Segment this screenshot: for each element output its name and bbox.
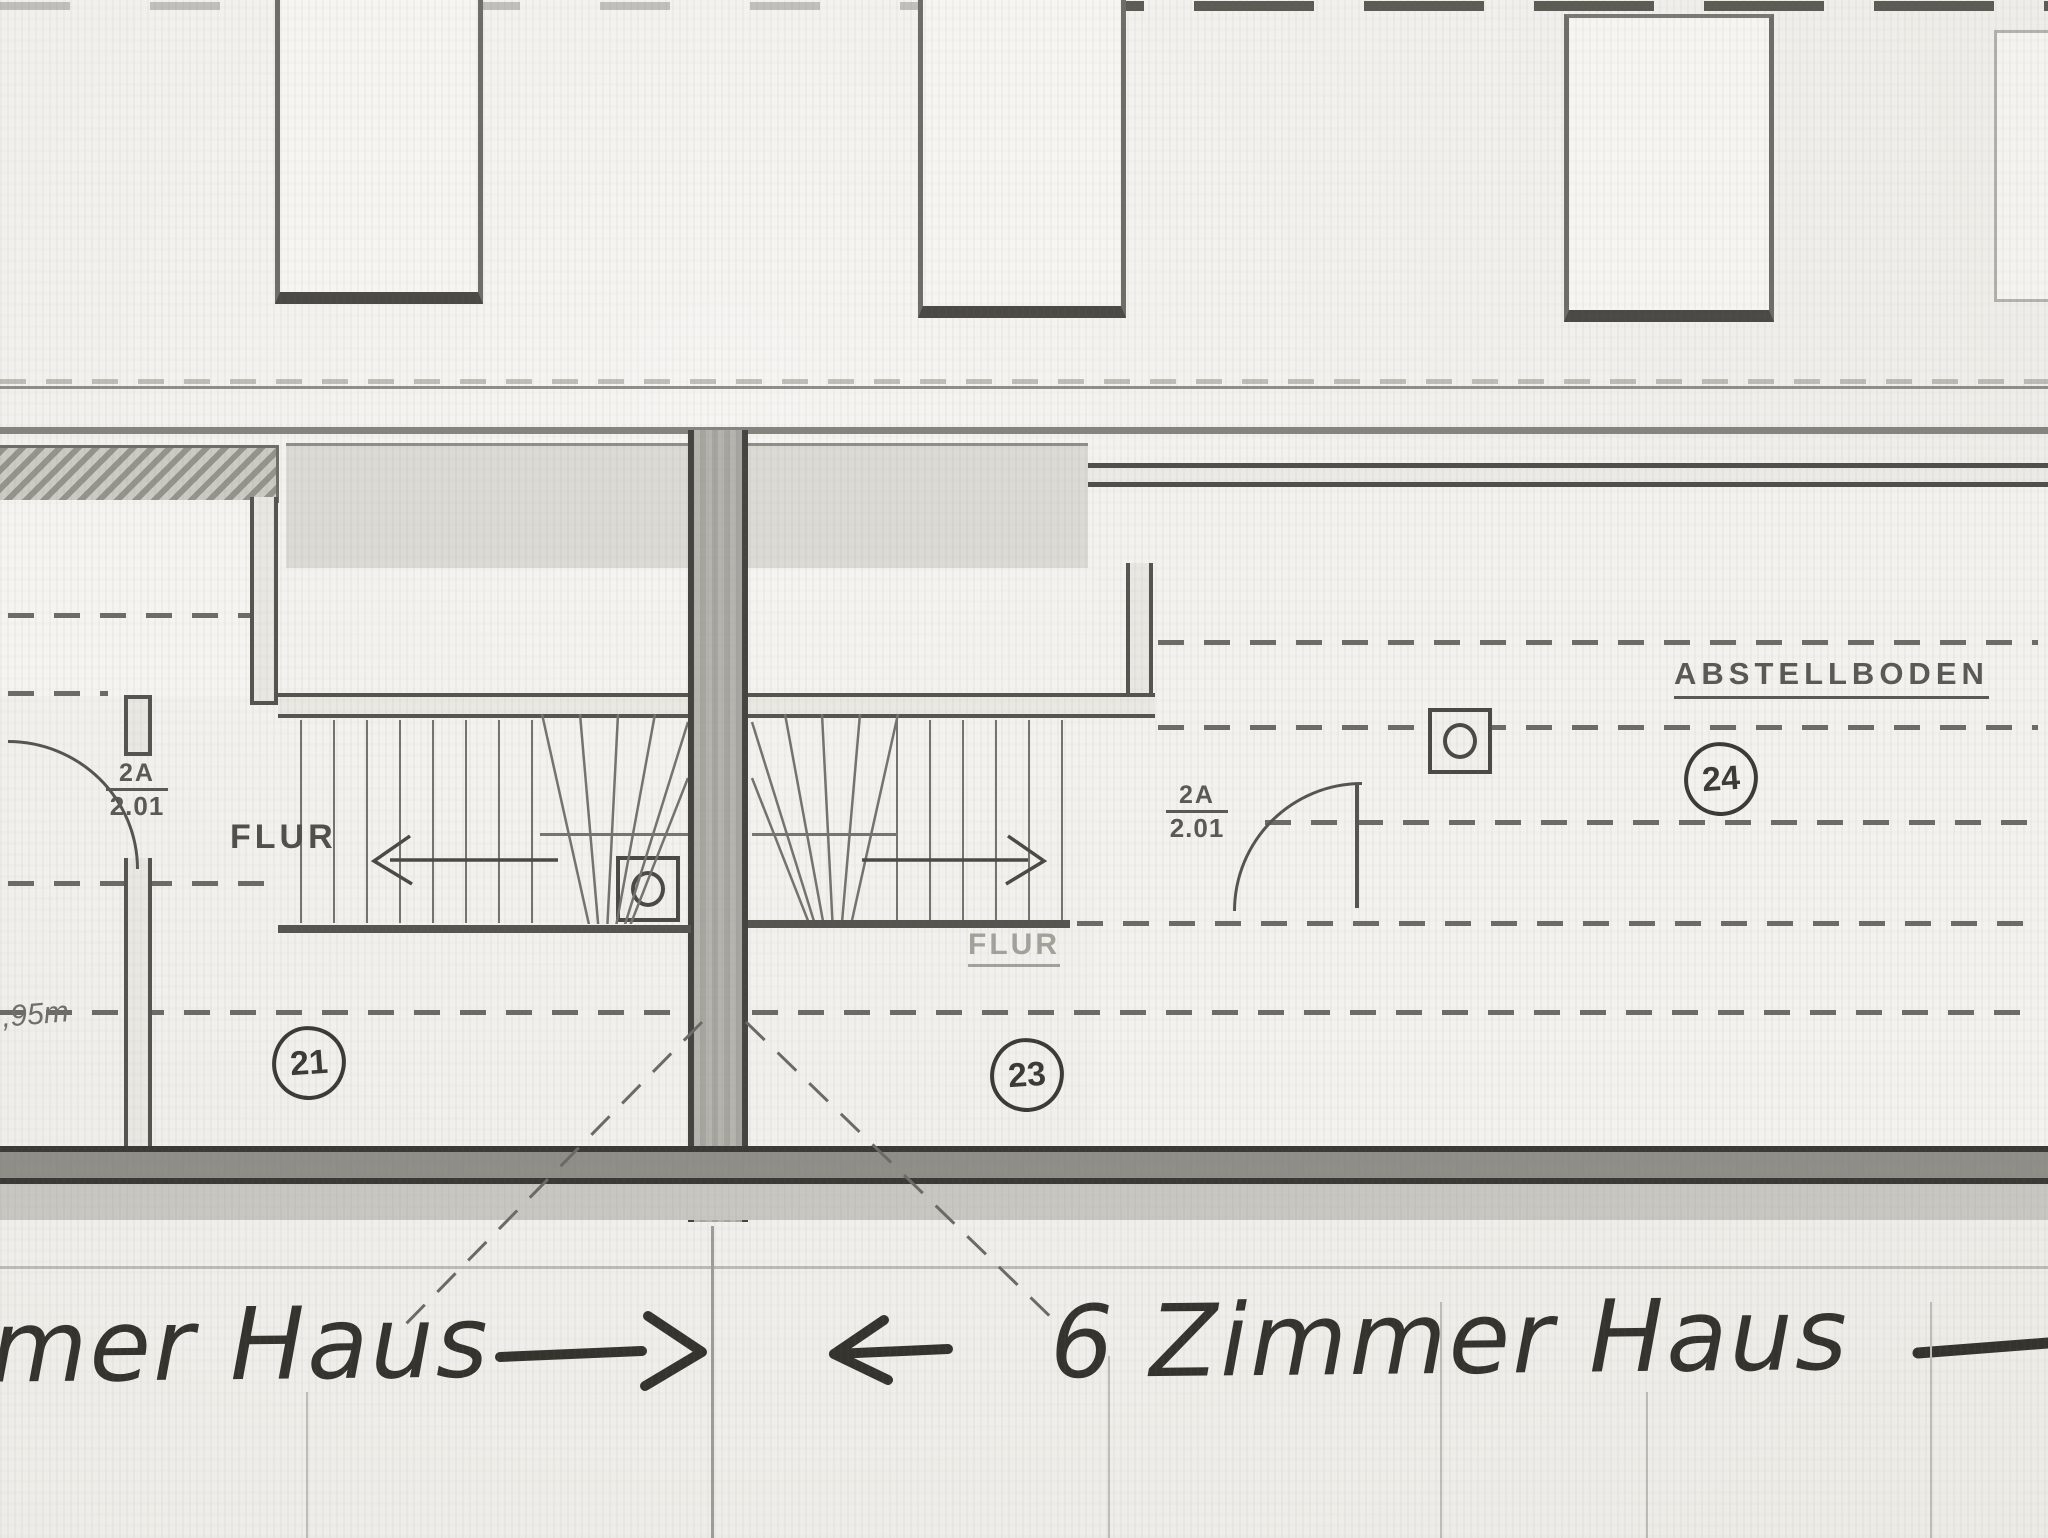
- right-stair-treads: [896, 720, 1068, 920]
- left-unit-room-floor: [0, 500, 250, 696]
- left-hall-label: FLUR: [230, 818, 337, 857]
- dash-row: [1158, 725, 2038, 730]
- room-number-23-text: 23: [1007, 1054, 1047, 1096]
- dash-row: [752, 1010, 2040, 1015]
- right-door-tag: 2A 2.01: [1166, 782, 1228, 843]
- top-edge-dashes-left: [0, 2, 1024, 10]
- bottom-exterior-wall: [0, 1146, 2048, 1184]
- trailing-dash: [1918, 1343, 2048, 1353]
- dash-row: [1158, 640, 2038, 645]
- right-unit-top-wall: [1088, 463, 2048, 487]
- guide-line: [1108, 1356, 1110, 1538]
- left-unit-front-wall: [0, 445, 279, 503]
- duct-circle-icon: [1443, 723, 1477, 759]
- right-house-caption: 6 Zimmer Haus: [1049, 1276, 1849, 1401]
- room-number-23: 23: [988, 1036, 1067, 1115]
- right-stair-winder-fan: [752, 714, 898, 992]
- duct-box-right: [1428, 708, 1492, 774]
- guide-line: [1440, 1302, 1442, 1538]
- eaves-line-lower: [0, 427, 2048, 434]
- chimney-shaft-2: [918, 0, 1126, 318]
- room-number-21-text: 21: [289, 1042, 329, 1084]
- dormer-roof-wash: [286, 443, 1088, 568]
- chimney-shaft-3: [1564, 14, 1774, 322]
- arrow-right-icon: [500, 1316, 702, 1386]
- attic-storage-label: ABSTELLBODEN: [1674, 656, 1989, 699]
- guide-line: [711, 1226, 714, 1538]
- duct-box-left: [616, 856, 680, 922]
- guide-line: [306, 1392, 308, 1538]
- dash-row: [0, 1010, 686, 1015]
- dash-row: [1265, 820, 2040, 825]
- right-door-tag-top: 2A: [1166, 782, 1228, 808]
- left-stair-bottom-wall: [278, 925, 691, 933]
- floor-plan-scan: 21 23 24 FLUR FLUR ABSTELLBODEN 2A 2.01 …: [0, 0, 2048, 1538]
- left-house-caption: mer Haus: [0, 1283, 490, 1405]
- eaves-line-upper: [0, 386, 2048, 389]
- ridge-dash-line: [0, 379, 2048, 384]
- right-unit-room-floor: [1092, 487, 2048, 1147]
- left-stair-winder-fan: [542, 714, 688, 992]
- room-number-21: 21: [270, 1024, 349, 1103]
- right-unit-partition-wall: [1126, 563, 1153, 693]
- room-number-24-text: 24: [1701, 758, 1741, 800]
- dash-row: [8, 691, 108, 696]
- facade-guide-line: [0, 1266, 2048, 1269]
- chimney-shaft-4-partial: [1994, 30, 2048, 302]
- guide-line: [1930, 1302, 1932, 1538]
- left-stair-mid-rail: [540, 833, 688, 836]
- guide-line: [1646, 1392, 1648, 1538]
- left-door-jamb: [124, 695, 152, 756]
- left-door-tag-bottom: 2.01: [106, 793, 168, 820]
- arrow-left-icon: [834, 1320, 948, 1380]
- left-door-tag: 2A 2.01: [106, 760, 168, 821]
- left-stair-top-wall: [278, 693, 688, 718]
- right-door-tag-bottom: 2.01: [1166, 815, 1228, 842]
- left-hall-wall: [124, 858, 152, 1148]
- right-stair-mid-rail: [752, 833, 898, 836]
- left-unit-partition-wall: [250, 497, 278, 705]
- right-stair-top-wall: [748, 693, 1155, 718]
- dash-row: [8, 613, 270, 618]
- dash-row: [1077, 921, 2040, 926]
- top-edge-dashes-right: [1024, 1, 2048, 11]
- party-wall: [688, 430, 748, 1222]
- dimension-label: ,95m: [1, 995, 70, 1035]
- right-hall-label: FLUR: [968, 928, 1060, 967]
- chimney-shaft-1: [275, 0, 483, 304]
- left-door-tag-top: 2A: [106, 760, 168, 786]
- duct-circle-icon: [631, 871, 665, 907]
- bottom-wall-shadow: [0, 1184, 2048, 1220]
- right-stair-bottom-wall: [748, 920, 1070, 928]
